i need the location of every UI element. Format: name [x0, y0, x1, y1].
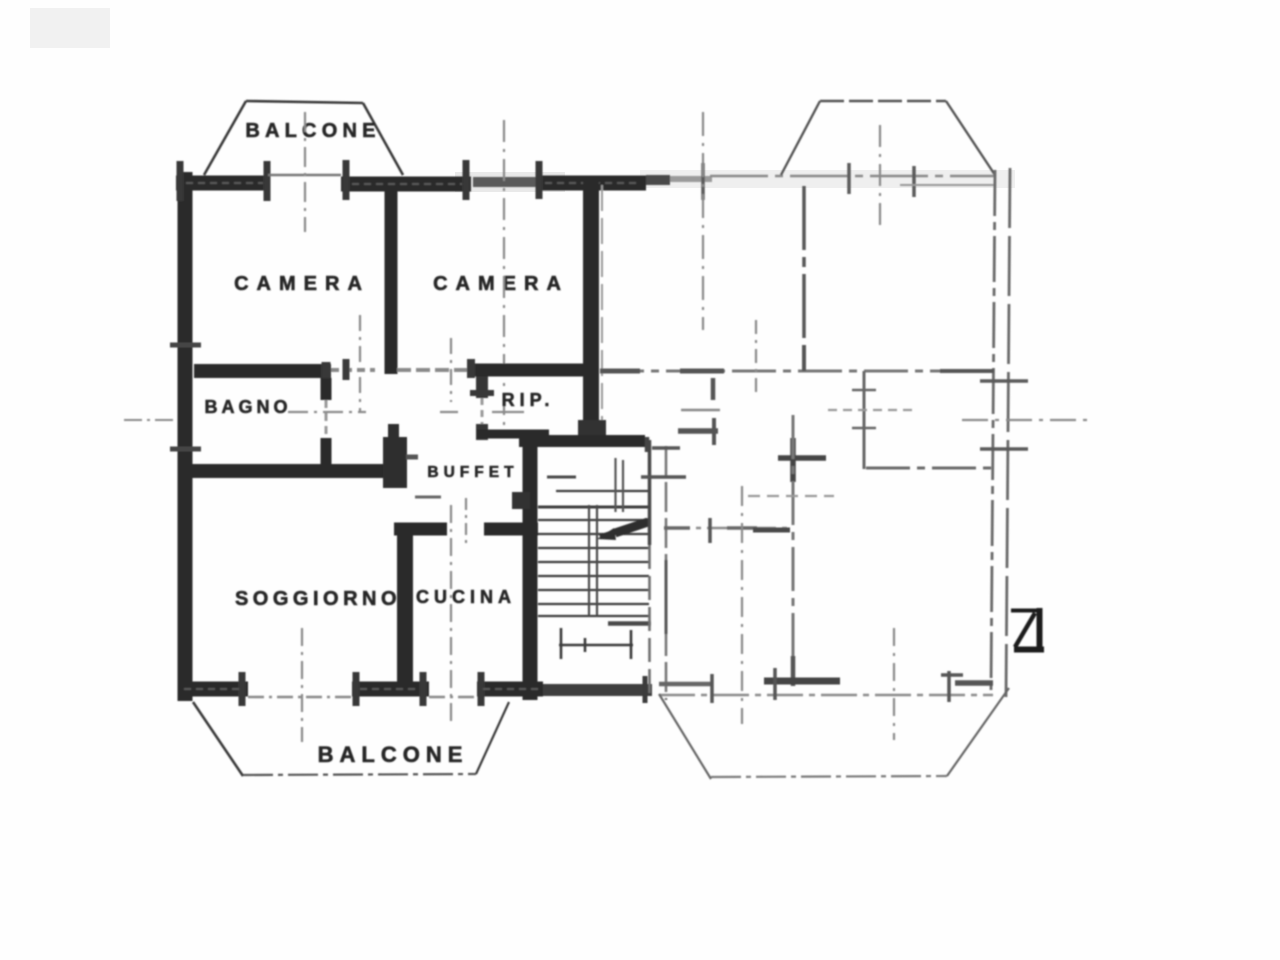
- svg-text:BUFFET: BUFFET: [427, 464, 518, 481]
- svg-text:CUCINA: CUCINA: [416, 587, 516, 607]
- svg-text:BAGNO: BAGNO: [205, 397, 292, 417]
- svg-text:BALCONE: BALCONE: [245, 120, 380, 142]
- svg-text:CAMERA: CAMERA: [234, 273, 370, 295]
- svg-text:RIP.: RIP.: [502, 390, 555, 410]
- svg-text:CAMERA: CAMERA: [433, 273, 569, 295]
- svg-text:BALCONE: BALCONE: [318, 742, 469, 767]
- svg-text:SOGGIORNO: SOGGIORNO: [235, 588, 401, 610]
